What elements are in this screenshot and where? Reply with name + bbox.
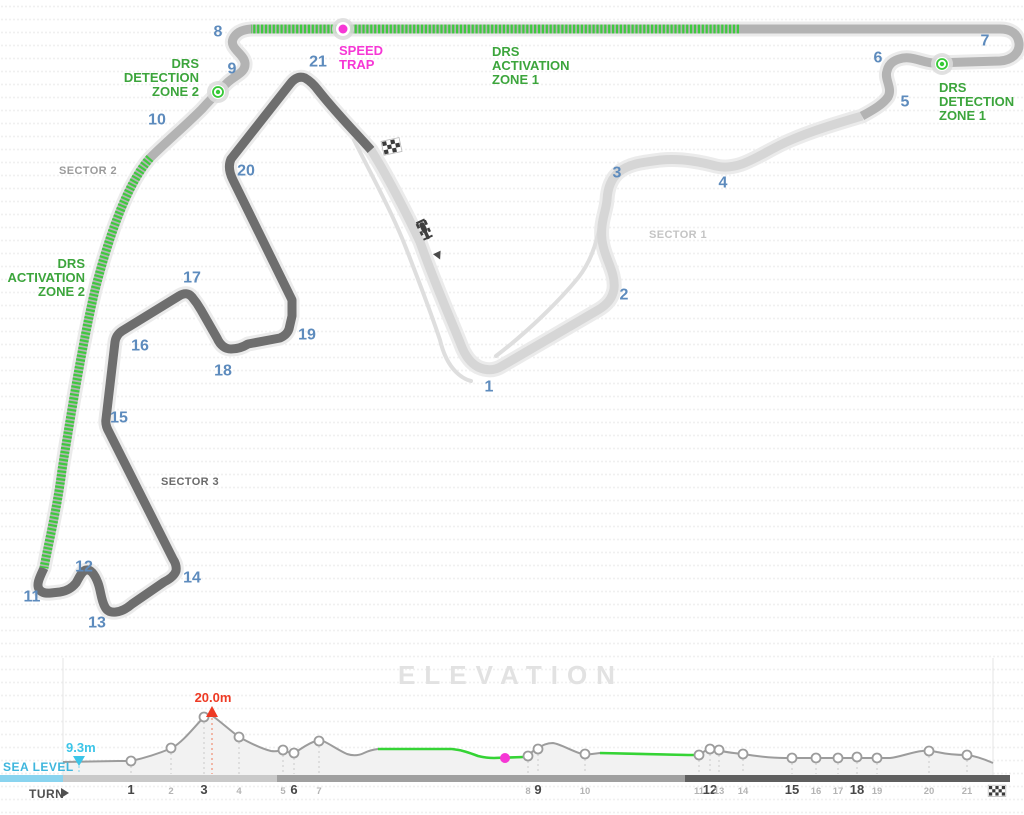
track-halo — [38, 29, 1019, 612]
elevation-marker-turn-6 — [290, 749, 299, 758]
elevation-turn-label-13: 13 — [714, 786, 725, 797]
elevation-turn-label-3: 3 — [200, 782, 207, 797]
elevation-marker-turn-21 — [963, 751, 972, 760]
sector-label-3: SECTOR 3 — [161, 476, 219, 488]
finish-flag-icon — [381, 138, 402, 156]
sector-label-2: SECTOR 2 — [59, 165, 117, 177]
map-turn-label-17: 17 — [183, 270, 201, 287]
elevation-marker-turn-13 — [715, 746, 724, 755]
min-elevation-label: 9.3m — [66, 740, 96, 755]
elevation-turn-label-6: 6 — [290, 782, 297, 797]
map-turn-label-7: 7 — [981, 33, 990, 50]
map-turn-label-6: 6 — [874, 50, 883, 67]
map-turn-label-5: 5 — [901, 94, 910, 111]
elevation-marker-turn-4 — [235, 733, 244, 742]
map-turn-label-9: 9 — [228, 61, 237, 78]
elevation-marker-turn-17 — [834, 754, 843, 763]
map-turn-label-21: 21 — [309, 54, 327, 71]
sea-level-bar — [0, 775, 63, 782]
map-turn-label-12: 12 — [75, 559, 93, 576]
elevation-turn-label-8: 8 — [525, 786, 530, 797]
elevation-speed-trap-dot — [500, 753, 510, 763]
elevation-turn-label-20: 20 — [924, 786, 935, 797]
max-elevation-marker — [206, 706, 218, 717]
elevation-turn-label-15: 15 — [785, 782, 799, 797]
map-annotations: DRSDETECTIONZONE 2SPEEDTRAPDRSACTIVATION… — [7, 43, 1014, 299]
elevation-turn-label-17: 17 — [833, 786, 844, 797]
map-turn-label-15: 15 — [110, 410, 128, 427]
elevation-marker-turn-14 — [739, 750, 748, 759]
drs-activation-zone-1-label: DRSACTIVATIONZONE 1 — [492, 44, 570, 87]
elevation-marker-turn-7 — [315, 737, 324, 746]
track-sector-1 — [371, 116, 862, 370]
map-turn-label-14: 14 — [183, 570, 201, 587]
elevation-turn-label-21: 21 — [962, 786, 973, 797]
drs-detection-zone-1-marker — [931, 53, 953, 75]
elevation-turn-label-16: 16 — [811, 786, 822, 797]
map-turn-label-20: 20 — [237, 163, 255, 180]
elevation-marker-turn-2 — [167, 744, 176, 753]
map-turn-label-11: 11 — [24, 589, 41, 606]
turn-axis-label: TURN — [29, 787, 64, 801]
map-turn-label-16: 16 — [131, 338, 149, 355]
turn-axis-arrow-icon — [61, 788, 69, 798]
elevation-marker-turn-15 — [788, 754, 797, 763]
elevation-marker-turn-10 — [581, 750, 590, 759]
elevation-sector-bar — [0, 775, 1010, 782]
elevation-marker-turn-12 — [706, 745, 715, 754]
map-turn-label-3: 3 — [613, 165, 622, 182]
drs-detection-zone-1-label: DRSDETECTIONZONE 1 — [939, 80, 1014, 123]
speed-trap-marker — [332, 18, 354, 40]
elevation-bar-sector-1 — [63, 775, 277, 782]
drs-activation-zone-2-label: DRSACTIVATIONZONE 2 — [7, 256, 85, 299]
elevation-turn-label-18: 18 — [850, 782, 864, 797]
elevation-turn-label-2: 2 — [168, 786, 173, 797]
circuit-page: 123456789101112131415161718192021 SECTOR… — [0, 0, 1024, 815]
map-turn-label-18: 18 — [214, 363, 232, 380]
map-turn-label-2: 2 — [620, 287, 629, 304]
elevation-title: ELEVATION — [398, 660, 624, 690]
direction-arrow-icon — [433, 251, 444, 262]
circuit-and-elevation-svg: 123456789101112131415161718192021 SECTOR… — [0, 0, 1024, 815]
elevation-turn-label-4: 4 — [236, 786, 242, 797]
sea-level-label: SEA LEVEL — [3, 760, 74, 774]
drs-activation-zone-2-stripes — [44, 158, 150, 568]
map-turn-label-10: 10 — [148, 112, 166, 129]
elevation-turn-label-10: 10 — [580, 786, 591, 797]
elevation-marker-turn-1 — [127, 757, 136, 766]
drs-detection-zone-2-label: DRSDETECTIONZONE 2 — [124, 56, 199, 99]
start-finish-area — [381, 138, 402, 156]
elevation-marker-turn-11 — [695, 751, 704, 760]
sector-label-1: SECTOR 1 — [649, 229, 707, 241]
max-elevation-label: 20.0m — [195, 690, 232, 705]
elevation-turn-label-5: 5 — [280, 786, 286, 797]
map-turn-label-8: 8 — [214, 24, 223, 41]
speed-trap-label: SPEEDTRAP — [339, 43, 383, 72]
map-turn-label-1: 1 — [485, 379, 494, 396]
elevation-turn-label-1: 1 — [127, 782, 134, 797]
elevation-bar-sector-3 — [685, 775, 1010, 782]
elevation-turn-label-19: 19 — [872, 786, 883, 797]
circuit-map: 123456789101112131415161718192021 SECTOR… — [7, 18, 1019, 632]
elevation-marker-turn-16 — [812, 754, 821, 763]
map-turn-label-4: 4 — [719, 175, 728, 192]
elevation-turn-label-14: 14 — [738, 786, 749, 797]
elevation-turn-label-7: 7 — [316, 786, 321, 797]
drs-detection-zone-2-marker — [207, 81, 229, 103]
elevation-marker-turn-19 — [873, 754, 882, 763]
elevation-finish-flag-icon — [988, 785, 1006, 796]
elevation-marker-turn-20 — [925, 747, 934, 756]
elevation-chart: ELEVATION 9.3m20.0m 12345678910111213141… — [0, 658, 1010, 801]
elevation-marker-turn-5 — [279, 746, 288, 755]
elevation-marker-turn-8 — [524, 752, 533, 761]
elevation-marker-turn-9 — [534, 745, 543, 754]
map-turn-label-19: 19 — [298, 327, 316, 344]
elevation-turn-label-9: 9 — [534, 782, 541, 797]
elevation-bar-sector-2 — [277, 775, 685, 782]
map-turn-label-13: 13 — [88, 615, 106, 632]
elevation-marker-turn-18 — [853, 753, 862, 762]
